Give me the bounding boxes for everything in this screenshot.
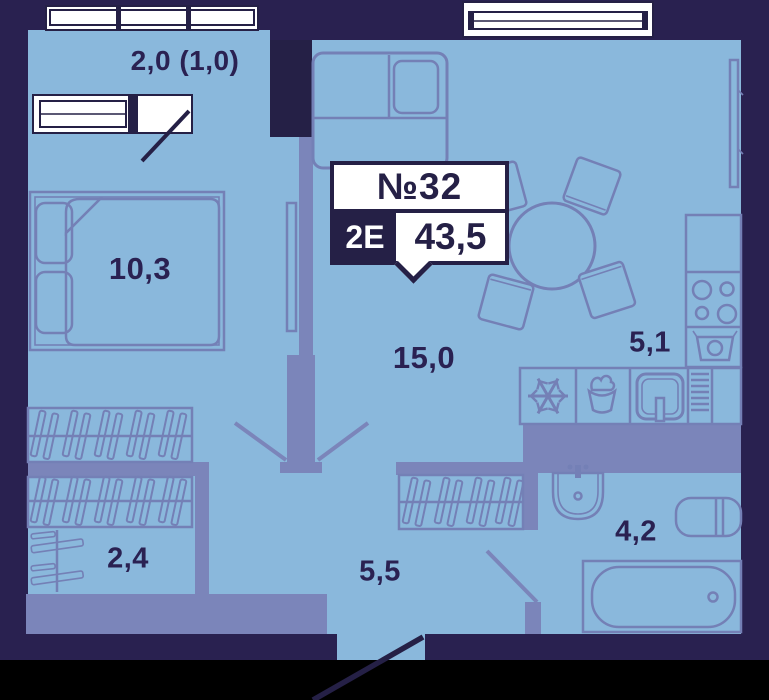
kitchen-counter-right (686, 215, 741, 367)
wall-kitchen-bath (523, 423, 741, 473)
dryer-lines-icon (691, 374, 709, 410)
bathtub-icon (583, 561, 741, 632)
apartment-type: 2Е (334, 213, 396, 261)
double-bed (30, 192, 224, 350)
big-sink-icon (637, 374, 683, 421)
chair (478, 274, 534, 330)
blanket (66, 199, 219, 345)
burners-icon (693, 281, 736, 323)
wall-tv (730, 60, 743, 187)
wall-closet-top (396, 462, 523, 475)
plan-graphics (0, 0, 769, 700)
wall-wardrobe-shelf (28, 462, 208, 476)
floor-plan: 2,0 (1,0) 10,3 15,0 5,1 2,4 5,5 4,2 №32 … (0, 0, 769, 700)
hall-closet-hangers-icon (399, 475, 524, 529)
wall-bottom-inner (26, 594, 327, 634)
apartment-badge: №32 2Е 43,5 (330, 161, 509, 265)
wall-bedroom-living (299, 137, 313, 355)
entry-door-swing-icon (313, 637, 423, 700)
bathroom-door-swing-icon (487, 551, 537, 602)
shoe-rack (31, 530, 83, 592)
wall-wardrobe-hall (195, 462, 209, 594)
snowflake-icon (528, 376, 568, 417)
wall-bath-left (523, 473, 538, 530)
basin-icon (553, 465, 603, 520)
balcony-window (46, 6, 258, 30)
wall-balcony-corner (270, 40, 312, 137)
toilet-icon (676, 498, 741, 536)
living-window (463, 2, 653, 37)
balcony-door-unit (33, 95, 192, 161)
bedroom-door-leaf (287, 203, 296, 331)
apartment-number: №32 (334, 165, 505, 209)
sink-icon (693, 331, 737, 360)
down-arrow-icon (235, 355, 368, 473)
corner-sofa (313, 53, 447, 168)
wall-bath-door-jamb (525, 602, 541, 634)
kitchen-counter-bottom (520, 368, 741, 424)
pot-icon (589, 376, 615, 413)
